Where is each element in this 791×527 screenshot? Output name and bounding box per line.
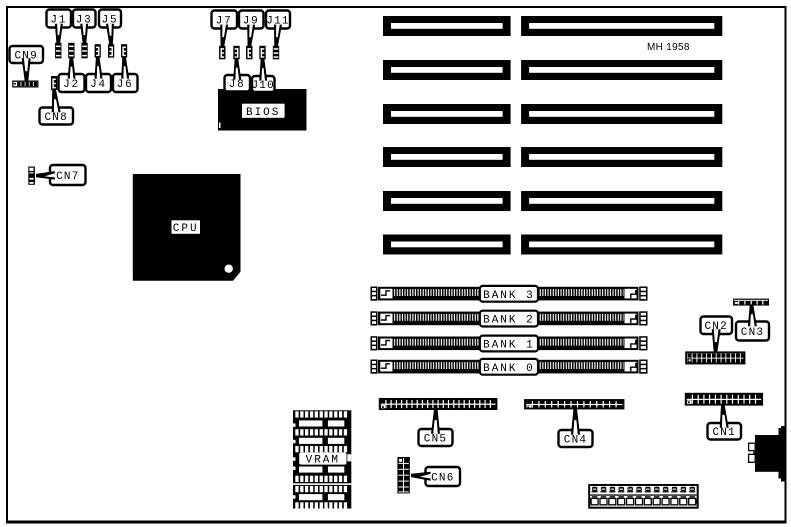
svg-text:CN6: CN6 xyxy=(431,472,454,484)
svg-text:J6: J6 xyxy=(117,79,134,91)
svg-text:BANK 0: BANK 0 xyxy=(483,363,535,375)
svg-text:CN1: CN1 xyxy=(712,427,735,439)
svg-text:CN4: CN4 xyxy=(564,434,587,446)
svg-text:VRAM: VRAM xyxy=(306,455,340,467)
svg-text:BANK 1: BANK 1 xyxy=(483,340,535,352)
svg-text:J4: J4 xyxy=(90,79,107,91)
svg-text:CN3: CN3 xyxy=(741,327,764,339)
svg-text:CN7: CN7 xyxy=(56,171,79,183)
svg-text:BANK 2: BANK 2 xyxy=(483,315,535,327)
svg-text:CPU: CPU xyxy=(173,223,199,235)
svg-text:J2: J2 xyxy=(63,79,80,91)
svg-text:CN5: CN5 xyxy=(424,433,447,445)
svg-text:J10: J10 xyxy=(251,80,274,92)
svg-text:CN8: CN8 xyxy=(44,112,67,124)
svg-text:BIOS: BIOS xyxy=(246,107,280,119)
svg-text:MH 1958: MH 1958 xyxy=(647,42,690,53)
svg-text:BANK 3: BANK 3 xyxy=(483,290,535,302)
svg-text:J8: J8 xyxy=(229,79,246,91)
